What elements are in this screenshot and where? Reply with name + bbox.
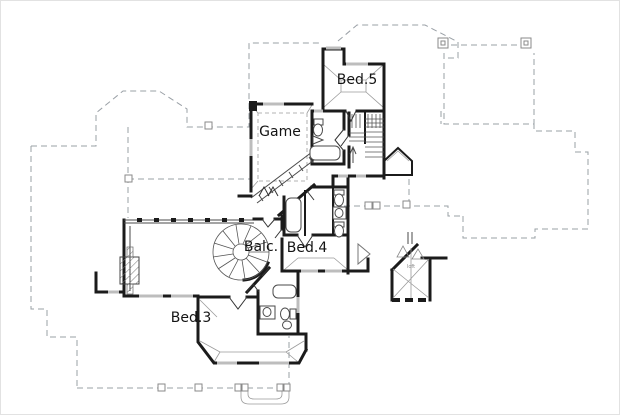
toilet-icon	[334, 190, 344, 206]
floor-plan-canvas: Bed.5 Game Balc. Bed.4 Bed.3 loft	[1, 1, 620, 415]
sink-counter-icon	[260, 306, 275, 319]
gallery-bridge	[251, 152, 318, 203]
loft-tower	[392, 232, 446, 300]
toilet-icon	[334, 222, 344, 237]
stair-direction-arrow	[350, 147, 356, 163]
toilet-icon	[314, 119, 324, 136]
room-label-loft: loft	[407, 264, 415, 270]
bathtub-icon	[286, 198, 301, 232]
sink-counter-icon	[333, 207, 346, 219]
bathtub-icon	[310, 146, 340, 160]
sink-icon	[283, 321, 292, 329]
main-staircase	[349, 114, 384, 163]
room-label-bed3: Bed.3	[171, 310, 211, 326]
sink-icon	[313, 136, 323, 144]
room-label-bed5: Bed.5	[337, 72, 377, 88]
room-label-bed4: Bed.4	[287, 240, 328, 256]
floor-plan-page: Bed.5 Game Balc. Bed.4 Bed.3 loft	[0, 0, 620, 415]
bathtub-icon	[273, 285, 296, 298]
room-label-game: Game	[259, 124, 301, 140]
room-label-balc: Balc.	[244, 239, 278, 255]
lower-floor-outline	[31, 25, 588, 404]
porch-posts	[125, 38, 531, 391]
toilet-icon	[281, 308, 297, 320]
windows	[108, 48, 368, 363]
